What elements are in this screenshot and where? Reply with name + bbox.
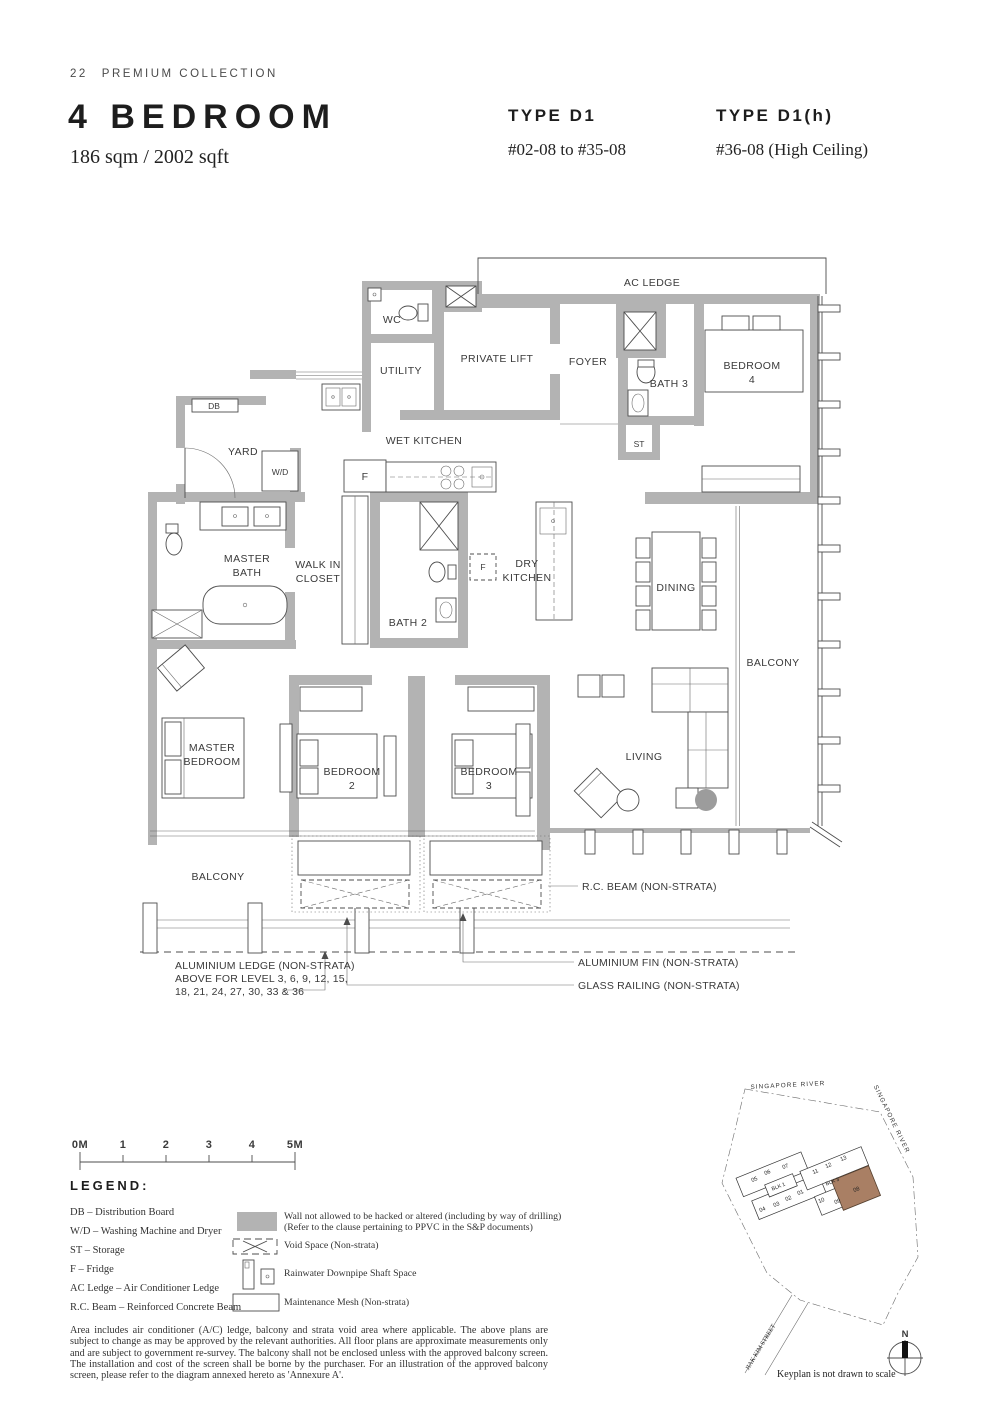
keyplan-note: Keyplan is not drawn to scale [777,1369,896,1380]
railing-posts [585,830,787,854]
room-label-master-bath-1: MASTER [224,553,270,565]
scale-4: 4 [249,1139,256,1151]
room-label-master-bed-1: MASTER [189,742,235,754]
room-label-st: ST [634,439,645,449]
room-label-utility: UTILITY [380,365,422,377]
room-label-bedroom2: BEDROOM [323,766,380,778]
legend-abbr-f: F – Fridge [70,1264,114,1275]
room-label-walkin-2: CLOSET [296,573,341,585]
room-label-wet-kitchen: WET KITCHEN [386,435,463,447]
room-label-walkin-1: WALK IN [295,559,341,571]
aluminium-fins [818,305,840,792]
dining-table [636,532,716,630]
alum-ledge-note-1: ALUMINIUM LEDGE (NON-STRATA) [175,960,355,972]
alum-ledge-note-2: ABOVE FOR LEVEL 3, 6, 9, 12, 15, [175,973,348,985]
legend-symbols [233,1212,279,1311]
legend-abbr-db: DB – Distribution Board [70,1207,174,1218]
keyplan: SINGAPORE RIVER SINGAPORE RIVER 05 06 07… [722,1080,923,1380]
room-label-bath2: BATH 2 [389,617,427,629]
scale-1: 1 [120,1139,127,1151]
room-label-balcony-bottom: BALCONY [192,871,245,883]
legend-abbr-rc: R.C. Beam – Reinforced Concrete Beam [70,1302,241,1313]
room-label-master-bed-2: BEDROOM [183,756,240,768]
scale-3: 3 [206,1139,213,1151]
legend-rainwater-symbol [243,1260,274,1289]
room-label-balcony-right: BALCONY [747,657,800,669]
living-furniture [574,668,728,818]
keyplan-street-label: JIAK KIM STREET [744,1323,777,1371]
room-label-living: LIVING [626,751,663,763]
room-label-foyer: FOYER [569,356,607,368]
room-label-ac-ledge: AC LEDGE [624,277,680,289]
room-label-dining: DINING [656,582,695,594]
legend-wall-text-2: (Refer to the clause pertaining to PPVC … [284,1222,533,1233]
bedroom4-furniture [702,316,803,492]
void-space-top [446,286,476,307]
scale-2: 2 [163,1139,170,1151]
room-label-wc: WC [383,314,401,326]
legend-wall-text-1: Wall not allowed to be hacked or altered… [284,1211,561,1222]
room-label-db: DB [208,401,220,411]
bedroom3-furniture [452,687,534,816]
legend-void-symbol [233,1239,277,1254]
scale-0m: 0M [72,1139,88,1151]
room-label-bedroom3: BEDROOM [460,766,517,778]
room-label-fridge2: F [480,562,485,572]
glass-railing-note: GLASS RAILING (NON-STRATA) [578,980,740,992]
legend-abbr-wd: W/D – Washing Machine and Dryer [70,1226,221,1237]
room-label-yard: YARD [228,446,258,458]
bath2-fixtures [420,502,458,622]
alum-fin-note: ALUMINIUM FIN (NON-STRATA) [578,957,739,969]
compass-north-label: N [902,1329,909,1340]
walkin-wardrobe [342,496,368,644]
rc-beam-note: R.C. BEAM (NON-STRATA) [582,881,717,893]
scale-bar: 0M 1 2 3 4 5M [72,1139,303,1170]
room-label-fridge: F [362,471,369,483]
legend-wall-symbol [237,1212,277,1231]
room-label-bedroom3-num: 3 [486,780,492,792]
legend-mesh-text: Maintenance Mesh (Non-strata) [284,1297,409,1308]
legend-title: LEGEND: [70,1178,150,1193]
scale-5m: 5M [287,1139,303,1151]
legend-abbr-st: ST – Storage [70,1245,125,1256]
maintenance-mesh-zones [292,836,550,912]
keyplan-river-right: SINGAPORE RIVER [872,1084,911,1154]
room-label-private-lift: PRIVATE LIFT [461,353,534,365]
room-label-master-bath-2: BATH [233,567,262,579]
room-label-bedroom2-num: 2 [349,780,355,792]
bedroom2-furniture [297,687,396,798]
legend-abbr-ac: AC Ledge – Air Conditioner Ledge [70,1283,219,1294]
disclaimer-text: Area includes air conditioner (A/C) ledg… [70,1325,548,1381]
room-label-bedroom4-num: 4 [749,374,755,386]
room-label-wd: W/D [272,467,289,477]
alum-ledge-note-3: 18, 21, 24, 27, 30, 33 & 36 [175,986,304,998]
master-bath-fixtures [152,502,287,638]
legend-rainwater-text: Rainwater Downpipe Shaft Space [284,1268,417,1279]
room-label-dry-2: KITCHEN [503,572,552,584]
floorplan-page: 22PREMIUM COLLECTION 4 BEDROOM 186 sqm /… [0,0,992,1428]
legend-void-text: Void Space (Non-strata) [284,1240,379,1251]
master-bedroom-furniture [158,645,292,798]
room-label-bedroom4: BEDROOM [723,360,780,372]
room-label-dry-1: DRY [515,558,538,570]
keyplan-river-top: SINGAPORE RIVER [750,1080,825,1091]
planter [695,789,717,811]
room-label-bath3: BATH 3 [650,378,688,390]
